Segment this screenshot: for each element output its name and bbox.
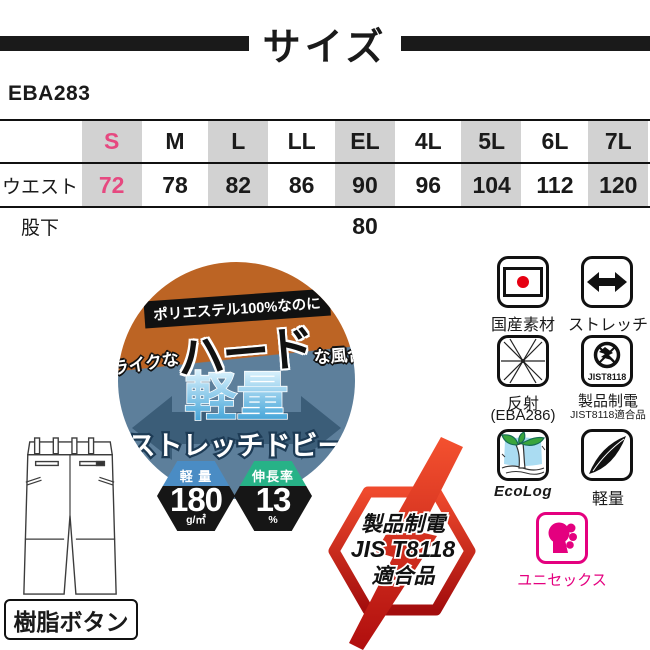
double-arrow-icon xyxy=(585,260,629,304)
size-col-m: M xyxy=(143,121,206,162)
size-header-row: S M L LL EL 4L 5L 6L 7L xyxy=(0,119,650,164)
size-col-6l: 6L xyxy=(523,121,586,162)
size-col-5l: 5L xyxy=(460,121,523,162)
inseam-row: 股下 xyxy=(0,208,650,245)
unisex-label: ユニセックス xyxy=(487,569,637,590)
page-title: サイズ xyxy=(263,16,388,71)
waist-value: 82 xyxy=(207,164,270,206)
texture-main: ハード xyxy=(175,308,316,389)
stretch-spec-unit: % xyxy=(268,515,277,525)
lightweight-feature-icon xyxy=(581,429,633,481)
waist-value: 72 xyxy=(80,164,143,206)
antistatic-feature-icon: JIST8118 xyxy=(581,335,633,387)
corner-cell xyxy=(0,121,80,162)
pants-back-view-drawing xyxy=(20,437,120,599)
texture-suffix: な風合い xyxy=(313,339,355,369)
size-table: S M L LL EL 4L 5L 6L 7L ウエスト 72 78 82 86… xyxy=(0,119,650,245)
stretch-feature-icon xyxy=(581,256,633,308)
antistatic-sublabel: JIST8118適合品 xyxy=(528,407,650,422)
waist-value: 104 xyxy=(460,164,523,206)
inseam-row-label: 股下 xyxy=(0,208,80,245)
waist-value: 90 xyxy=(333,164,396,206)
static-control-icon xyxy=(584,340,630,372)
resin-button-callout: 樹脂ボタン xyxy=(4,599,138,640)
weight-spec-unit: g/㎡ xyxy=(186,515,206,525)
waist-value: 112 xyxy=(523,164,586,206)
waist-value: 120 xyxy=(587,164,650,206)
product-size-sheet: サイズ EBA283 S M L LL EL 4L 5L 6L 7L ウエスト … xyxy=(0,0,650,650)
emblem-line2: JIS T8118 xyxy=(351,536,456,562)
stretch-label: ストレッチ xyxy=(533,311,650,335)
fabric-feature-badge: 軽量 ストレッチドビー ポリエステル100%なのに 綿ライクな ハード な風合い xyxy=(118,262,355,499)
jis-badge-text: JIST8118 xyxy=(588,372,627,382)
waist-value: 78 xyxy=(143,164,206,206)
weight-spec-value: 180 xyxy=(170,485,222,515)
waist-row: ウエスト 72 78 82 86 90 96 104 112 120 xyxy=(0,164,650,208)
antistatic-emblem: 製品制電 JIS T8118 適合品 xyxy=(323,437,487,650)
starburst-icon xyxy=(500,338,546,384)
title-bar-right xyxy=(401,36,650,51)
emblem-line1: 製品制電 xyxy=(361,512,448,536)
size-col-ll: LL xyxy=(270,121,333,162)
size-col-s: S xyxy=(80,121,143,162)
size-col-el: EL xyxy=(333,121,396,162)
texture-headline: 綿ライクな ハード な風合い xyxy=(118,314,355,383)
inseam-value: 80 xyxy=(335,208,395,245)
section-title-row: サイズ xyxy=(0,20,650,66)
waist-value: 96 xyxy=(397,164,460,206)
size-col-7l: 7L xyxy=(587,121,650,162)
ecolog-feature-icon xyxy=(497,429,549,481)
emblem-line3: 適合品 xyxy=(372,564,436,588)
waist-value: 86 xyxy=(270,164,333,206)
female-silhouette-icon xyxy=(541,517,583,559)
fabric-name-text: ストレッチドビー xyxy=(129,431,345,461)
japan-flag-icon xyxy=(503,267,543,297)
size-col-l: L xyxy=(207,121,270,162)
unisex-feature-icon xyxy=(536,512,588,564)
size-col-4l: 4L xyxy=(397,121,460,162)
sprout-icon xyxy=(500,432,546,478)
title-bar-left xyxy=(0,36,249,51)
stretch-spec-value: 13 xyxy=(256,485,291,515)
feather-icon xyxy=(584,432,630,478)
product-code: EBA283 xyxy=(8,82,90,106)
lightweight-label: 軽量 xyxy=(533,485,650,509)
waist-row-label: ウエスト xyxy=(0,164,80,206)
texture-prefix: 綿ライクな xyxy=(118,344,180,382)
reflective-feature-icon xyxy=(497,335,549,387)
domestic-material-icon xyxy=(497,256,549,308)
